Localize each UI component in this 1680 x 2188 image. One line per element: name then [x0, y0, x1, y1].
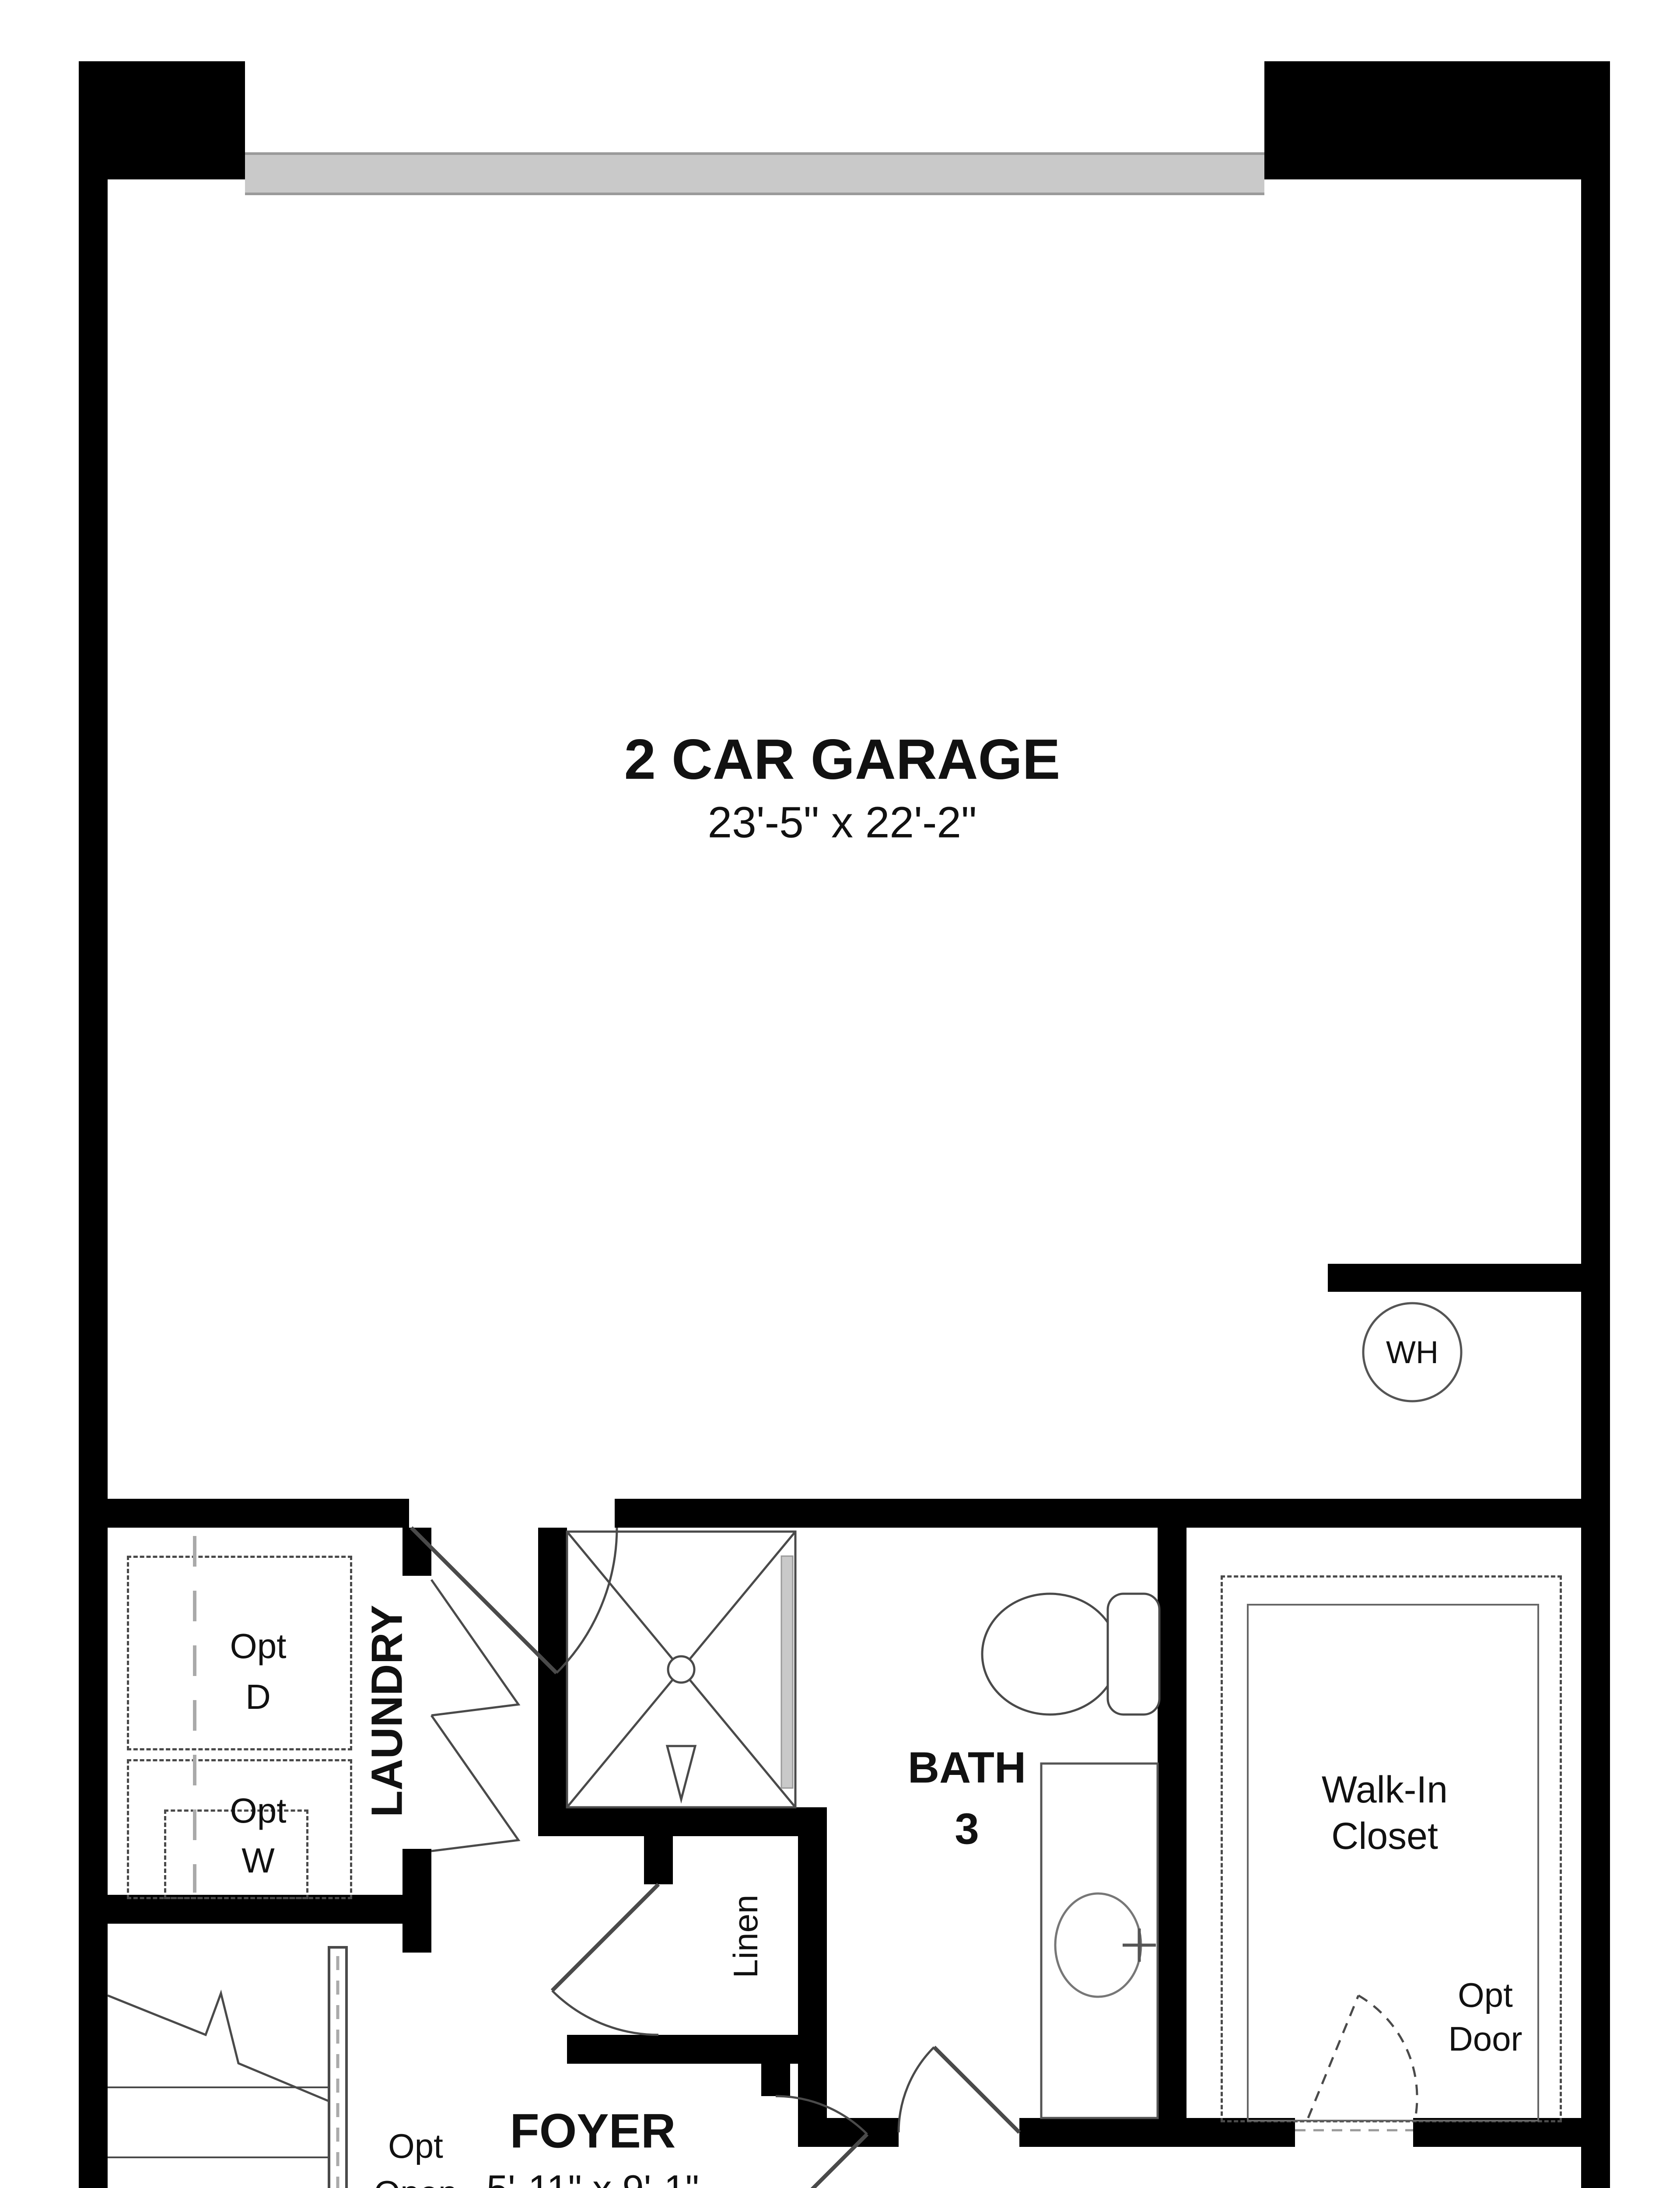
stair-treads	[108, 2087, 433, 2188]
opt-dryer-label: Opt	[230, 1628, 287, 1665]
sink-vanity-icon	[1041, 1764, 1158, 2118]
room-label-walk-in-2: Closet	[1331, 1816, 1438, 1856]
water-heater-label: WH	[1386, 1336, 1438, 1370]
room-dims-foyer: 5'-11" x 9'-1"	[486, 2169, 699, 2188]
door-linen	[552, 1884, 658, 2035]
room-label-foyer: FOYER	[510, 2106, 676, 2156]
door-foyer-bedroom	[776, 2096, 867, 2188]
opt-dryer-letter: D	[245, 1679, 271, 1715]
room-label-bath3: BATH	[908, 1745, 1026, 1791]
room-label-garage: 2 CAR GARAGE	[624, 729, 1060, 789]
stair-break-line	[108, 1993, 332, 2103]
room-label-walk-in-1: Walk-In	[1322, 1770, 1448, 1809]
room-label-linen: Linen	[728, 1895, 764, 1978]
shower	[567, 1532, 795, 1807]
opt-door-label-2: Door	[1448, 2021, 1522, 2057]
door-opt-closet	[1295, 1995, 1417, 2130]
opt-door-label-1: Opt	[1458, 1978, 1513, 2013]
opt-open-railing-label-2: Open	[374, 2175, 458, 2188]
floor-plan: 2 CAR GARAGE 23'-5" x 22'-2" WH LAUNDRY …	[0, 0, 1680, 2188]
door-garage-entry	[411, 1528, 617, 1673]
door-bath3	[899, 2047, 1019, 2132]
room-number-bath3: 3	[955, 1806, 979, 1852]
opt-washer-label: Opt	[230, 1792, 287, 1829]
room-dims-garage: 23'-5" x 22'-2"	[707, 800, 976, 846]
room-label-laundry: LAUNDRY	[364, 1605, 410, 1817]
opt-open-railing-label-1: Opt	[388, 2128, 443, 2164]
toilet-icon	[982, 1594, 1159, 1715]
shower-glass-icon	[781, 1556, 793, 1788]
opt-washer-letter: W	[241, 1842, 275, 1879]
